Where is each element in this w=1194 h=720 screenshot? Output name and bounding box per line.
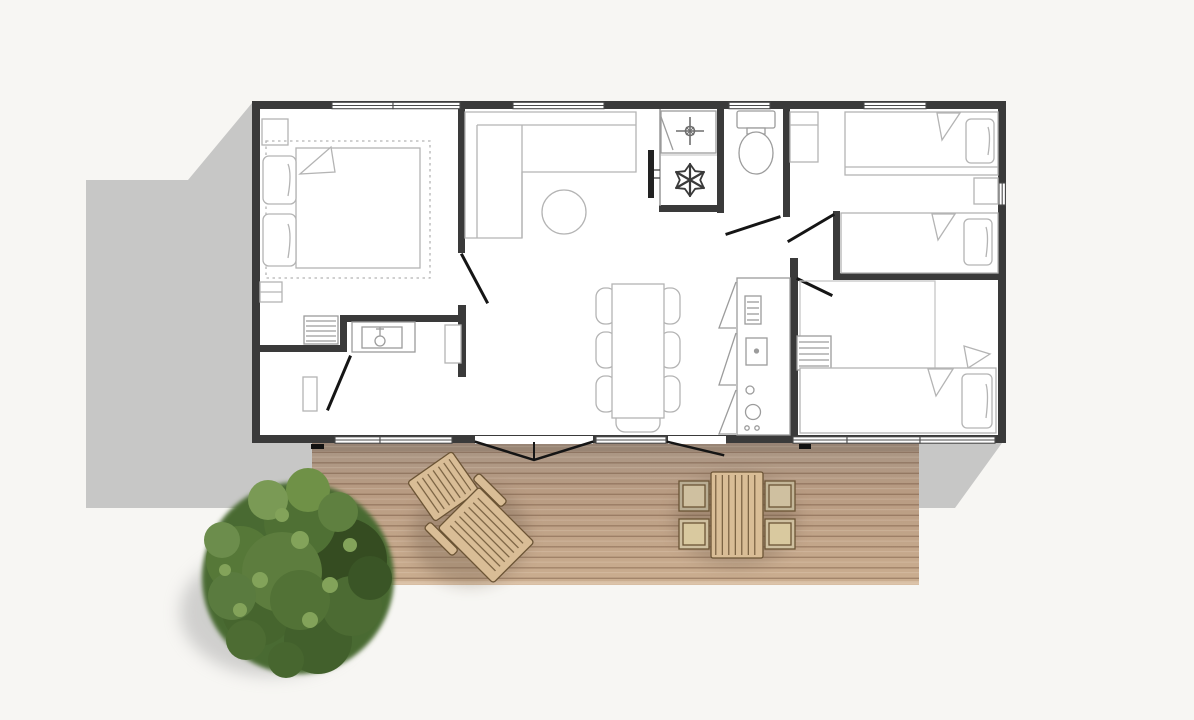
window [596, 437, 666, 443]
wardrobe [260, 282, 282, 302]
stove [746, 338, 767, 365]
pillow [263, 156, 296, 204]
shelf [445, 325, 461, 363]
dining-furniture [596, 284, 680, 432]
pillow [263, 214, 296, 266]
building [252, 101, 1006, 460]
deck-edge-highlight [312, 581, 919, 585]
wall-wc-right [783, 109, 790, 217]
single-bed [800, 368, 996, 433]
step-mark [799, 444, 811, 449]
window [393, 102, 460, 108]
nightstand [974, 178, 998, 204]
outdoor-chair [765, 481, 795, 511]
window [380, 437, 452, 443]
toilet [737, 111, 775, 174]
window [729, 102, 770, 108]
ladder-drawers [797, 336, 831, 370]
wall-twinroom-alcove-h [833, 273, 998, 280]
floorplan-canvas [0, 0, 1194, 720]
dining-table [612, 284, 664, 418]
wall-ensuite-left [260, 345, 347, 352]
radiator [303, 377, 317, 411]
wall-ensuite-top [340, 315, 466, 322]
washbasin [352, 322, 415, 352]
wall-closet-right [717, 109, 724, 213]
vent-shelf [745, 296, 761, 324]
wall-bedroom1-living [458, 109, 465, 253]
outdoor-chair [679, 519, 709, 549]
twin-bed-1 [845, 112, 998, 175]
outdoor-table [711, 472, 763, 558]
outdoor-chair [679, 481, 709, 511]
window [513, 102, 604, 108]
wardrobe [790, 112, 818, 162]
twin-bed-2 [841, 213, 998, 273]
window [999, 183, 1005, 205]
wall-closet-bottom [659, 205, 724, 212]
tv-screen [648, 150, 654, 198]
window [332, 102, 393, 108]
window [864, 102, 926, 108]
outdoor-chair [765, 519, 795, 549]
wall-twinroom-alcove-v [833, 211, 840, 280]
dresser [304, 316, 338, 344]
window [920, 437, 995, 443]
window [793, 437, 847, 443]
wc-furniture [737, 111, 775, 174]
floorplan-scene [0, 0, 1194, 720]
window [335, 437, 380, 443]
window [847, 437, 920, 443]
terrace-deck [312, 441, 919, 585]
step-mark [311, 444, 324, 449]
